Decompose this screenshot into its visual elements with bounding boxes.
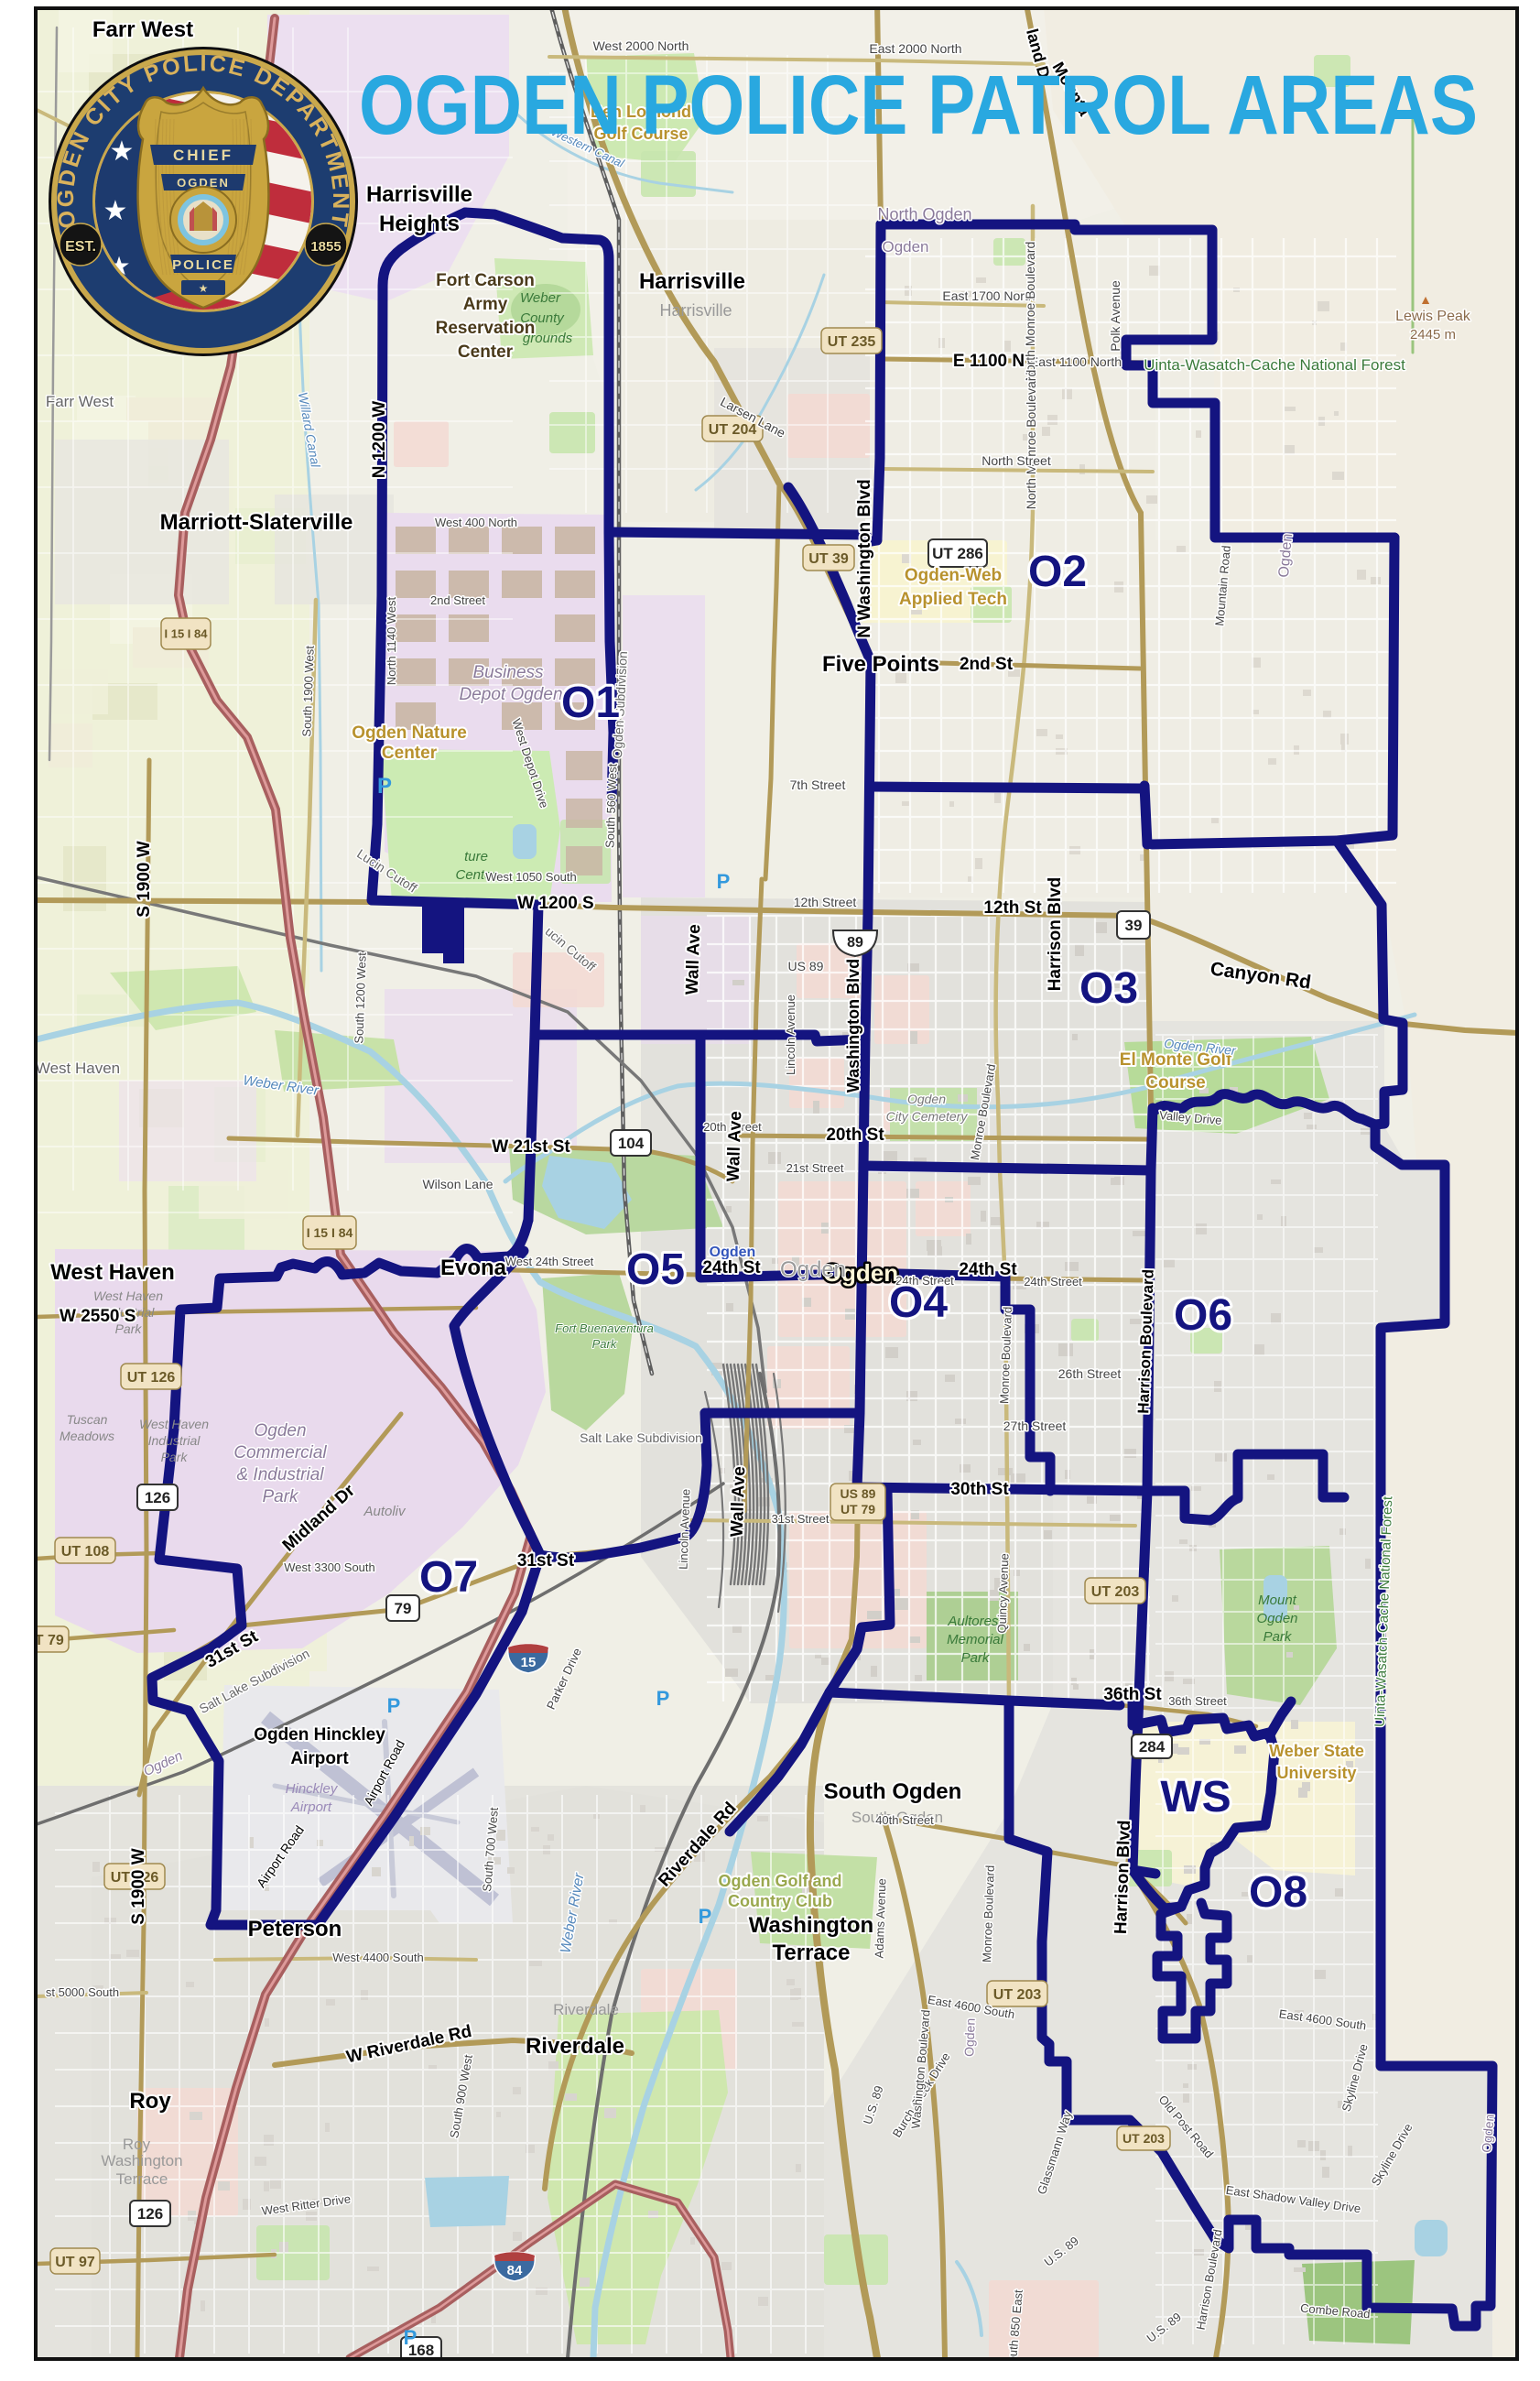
svg-text:Salt Lake Subdivision: Salt Lake Subdivision bbox=[580, 1430, 702, 1445]
svg-text:Washington Blvd: Washington Blvd bbox=[844, 959, 862, 1093]
svg-text:Lincoln Avenue: Lincoln Avenue bbox=[784, 995, 797, 1075]
svg-text:North 1140 West: North 1140 West bbox=[385, 596, 398, 685]
svg-text:Adams Avenue: Adams Avenue bbox=[872, 1878, 888, 1959]
svg-text:P: P bbox=[404, 2326, 418, 2349]
svg-text:East 2000 North: East 2000 North bbox=[869, 41, 961, 56]
svg-text:West Haven: West Haven bbox=[93, 1288, 163, 1303]
svg-text:284: 284 bbox=[1139, 1738, 1166, 1756]
svg-text:City Cemetery: City Cemetery bbox=[886, 1109, 969, 1124]
svg-text:12th St: 12th St bbox=[983, 898, 1042, 918]
svg-text:Wall Ave: Wall Ave bbox=[683, 924, 705, 995]
svg-text:Ogden Golf and: Ogden Golf and bbox=[719, 1872, 842, 1890]
svg-text:Center: Center bbox=[382, 744, 438, 763]
svg-text:Polk Avenue: Polk Avenue bbox=[1108, 280, 1122, 352]
svg-text:★: ★ bbox=[199, 282, 209, 295]
svg-text:Business: Business bbox=[472, 663, 544, 682]
svg-text:West 1050 South: West 1050 South bbox=[485, 870, 577, 884]
svg-text:West 2000 North: West 2000 North bbox=[593, 38, 689, 53]
svg-text:S 1900 W: S 1900 W bbox=[129, 1848, 148, 1924]
svg-text:North Ogden: North Ogden bbox=[877, 205, 971, 223]
svg-text:7th Street: 7th Street bbox=[790, 777, 846, 792]
svg-text:24th St: 24th St bbox=[959, 1260, 1017, 1279]
svg-text:North Monroe Boulevard: North Monroe Boulevard bbox=[1023, 242, 1037, 382]
svg-text:OGDEN POLICE PATROL AREAS: OGDEN POLICE PATROL AREAS bbox=[359, 59, 1478, 152]
svg-text:26th Street: 26th Street bbox=[1058, 1366, 1122, 1381]
svg-text:24th St: 24th St bbox=[702, 1258, 761, 1277]
svg-text:UT 126: UT 126 bbox=[127, 1370, 176, 1386]
svg-text:Airport: Airport bbox=[290, 1799, 332, 1815]
svg-text:O1: O1 bbox=[561, 679, 620, 727]
svg-text:Riverdale: Riverdale bbox=[553, 2001, 619, 2018]
svg-text:POLICE: POLICE bbox=[172, 257, 234, 273]
svg-text:West Haven: West Haven bbox=[50, 1260, 175, 1285]
svg-text:US 89: US 89 bbox=[788, 959, 824, 973]
svg-text:36th Street: 36th Street bbox=[1168, 1694, 1227, 1708]
svg-text:Ogden: Ogden bbox=[882, 238, 928, 255]
svg-text:21st Street: 21st Street bbox=[786, 1161, 844, 1175]
svg-text:W 21st St: W 21st St bbox=[492, 1137, 570, 1157]
svg-text:Course: Course bbox=[1145, 1073, 1205, 1093]
svg-text:Heights: Heights bbox=[379, 212, 460, 236]
svg-text:UT 108: UT 108 bbox=[61, 1544, 110, 1560]
svg-text:31st St: 31st St bbox=[517, 1551, 575, 1571]
svg-text:Fort Carson: Fort Carson bbox=[436, 271, 535, 290]
svg-text:84: 84 bbox=[507, 2263, 523, 2278]
svg-text:P: P bbox=[387, 1694, 401, 1717]
svg-text:Applied Tech: Applied Tech bbox=[899, 590, 1007, 609]
svg-text:▲: ▲ bbox=[1419, 292, 1432, 307]
svg-text:Quincy Avenue: Quincy Avenue bbox=[994, 1553, 1011, 1634]
svg-text:West Haven: West Haven bbox=[36, 1060, 120, 1077]
svg-text:East 1700 North: East 1700 North bbox=[942, 288, 1035, 303]
svg-text:Ogden Hinckley: Ogden Hinckley bbox=[254, 1725, 385, 1745]
svg-text:12th Street: 12th Street bbox=[794, 895, 857, 909]
svg-text:Ogden: Ogden bbox=[780, 1257, 846, 1282]
svg-text:EST.: EST. bbox=[65, 239, 96, 255]
svg-text:Memorial: Memorial bbox=[947, 1632, 1003, 1647]
svg-text:West 400 North: West 400 North bbox=[435, 516, 517, 529]
svg-text:E 1100 N: E 1100 N bbox=[953, 352, 1025, 371]
svg-text:Park: Park bbox=[1263, 1629, 1293, 1645]
svg-text:Lincoln Avenue: Lincoln Avenue bbox=[676, 1489, 692, 1570]
svg-text:US 89: US 89 bbox=[840, 1486, 876, 1501]
svg-text:Lewis Peak: Lewis Peak bbox=[1395, 309, 1471, 324]
svg-text:I 15 I 84: I 15 I 84 bbox=[165, 627, 209, 641]
svg-text:79: 79 bbox=[395, 1600, 412, 1617]
svg-text:15: 15 bbox=[521, 1655, 537, 1670]
svg-text:126: 126 bbox=[145, 1489, 170, 1506]
svg-text:Weber State: Weber State bbox=[1269, 1742, 1364, 1760]
svg-text:UT 203: UT 203 bbox=[993, 1987, 1042, 2003]
svg-text:Harrisville: Harrisville bbox=[366, 182, 472, 207]
svg-text:P: P bbox=[717, 870, 731, 893]
svg-text:University: University bbox=[1276, 1764, 1356, 1782]
svg-text:89: 89 bbox=[847, 935, 863, 951]
svg-text:East 1100 North: East 1100 North bbox=[1030, 354, 1122, 369]
svg-text:Army: Army bbox=[463, 295, 508, 314]
svg-text:P: P bbox=[377, 774, 392, 799]
svg-text:Roy: Roy bbox=[129, 2089, 171, 2114]
svg-text:Industrial: Industrial bbox=[148, 1433, 201, 1448]
svg-text:Evona: Evona bbox=[440, 1256, 507, 1280]
svg-text:Terrace: Terrace bbox=[773, 1941, 851, 1965]
svg-text:20th St: 20th St bbox=[826, 1125, 884, 1145]
svg-text:Ogden Nature: Ogden Nature bbox=[352, 723, 467, 743]
svg-text:Fort Buenaventura: Fort Buenaventura bbox=[555, 1321, 654, 1335]
svg-text:UT 203: UT 203 bbox=[1122, 2131, 1165, 2146]
svg-text:grounds: grounds bbox=[523, 331, 573, 346]
svg-text:Ogden: Ogden bbox=[961, 2018, 977, 2058]
svg-text:O7: O7 bbox=[419, 1553, 478, 1602]
svg-text:W 1200 S: W 1200 S bbox=[517, 894, 593, 913]
svg-text:Ogden-Web: Ogden-Web bbox=[905, 566, 1002, 585]
svg-text:P: P bbox=[699, 1905, 712, 1928]
svg-text:Park: Park bbox=[262, 1487, 299, 1506]
svg-text:2nd St: 2nd St bbox=[960, 655, 1014, 674]
svg-text:Commercial: Commercial bbox=[233, 1443, 327, 1462]
svg-text:UT 286: UT 286 bbox=[932, 545, 983, 562]
svg-text:Wall Ave: Wall Ave bbox=[724, 1111, 746, 1182]
svg-text:1855: 1855 bbox=[310, 239, 341, 255]
svg-text:WS: WS bbox=[1160, 1773, 1231, 1821]
svg-text:Riverdale: Riverdale bbox=[526, 2034, 624, 2059]
svg-text:UT 39: UT 39 bbox=[808, 551, 849, 567]
svg-text:★: ★ bbox=[103, 196, 128, 226]
svg-text:Uinta-Wasatch-Cache National F: Uinta-Wasatch-Cache National Forest bbox=[1144, 356, 1405, 374]
svg-text:2445 m: 2445 m bbox=[1410, 327, 1456, 342]
svg-text:O8: O8 bbox=[1249, 1868, 1307, 1917]
svg-text:S 1900 W: S 1900 W bbox=[135, 841, 154, 917]
svg-text:UT 97: UT 97 bbox=[55, 2255, 95, 2270]
svg-text:Roy: Roy bbox=[123, 2136, 151, 2153]
svg-text:North Street: North Street bbox=[981, 453, 1051, 468]
svg-text:O3: O3 bbox=[1079, 964, 1138, 1013]
svg-text:Harrison Blvd: Harrison Blvd bbox=[1112, 1820, 1134, 1934]
svg-text:Five Points: Five Points bbox=[822, 652, 939, 677]
svg-text:Harrisville: Harrisville bbox=[659, 301, 732, 320]
svg-text:West 3300 South: West 3300 South bbox=[284, 1560, 375, 1574]
svg-text:Wilson Lane: Wilson Lane bbox=[422, 1177, 493, 1191]
svg-text:N Washington Blvd: N Washington Blvd bbox=[855, 479, 874, 637]
svg-text:Harrison Blvd: Harrison Blvd bbox=[1046, 877, 1065, 992]
svg-text:North Monroe Boulevard: North Monroe Boulevard bbox=[1024, 370, 1038, 510]
svg-text:Depot Ogden: Depot Ogden bbox=[459, 685, 562, 704]
svg-text:Washington: Washington bbox=[101, 2152, 182, 2169]
svg-text:Hinckley: Hinckley bbox=[286, 1781, 339, 1797]
svg-text:Country Club: Country Club bbox=[728, 1892, 832, 1910]
svg-text:Airport: Airport bbox=[290, 1749, 349, 1768]
svg-text:West 4400 South: West 4400 South bbox=[332, 1951, 424, 1964]
svg-text:Ogden: Ogden bbox=[254, 1421, 306, 1441]
svg-text:West 24th Street: West 24th Street bbox=[505, 1255, 594, 1268]
svg-text:County: County bbox=[520, 310, 565, 326]
svg-text:O6: O6 bbox=[1174, 1291, 1232, 1340]
svg-text:Park: Park bbox=[592, 1337, 618, 1351]
svg-text:Tuscan: Tuscan bbox=[67, 1412, 108, 1427]
svg-text:Park: Park bbox=[161, 1450, 189, 1464]
svg-text:27th Street: 27th Street bbox=[1003, 1419, 1067, 1433]
svg-text:Farr West: Farr West bbox=[46, 393, 114, 410]
svg-text:Ogden: Ogden bbox=[907, 1092, 946, 1106]
svg-text:West Haven: West Haven bbox=[139, 1417, 209, 1431]
svg-text:Autoliv: Autoliv bbox=[363, 1504, 407, 1519]
svg-text:Park: Park bbox=[961, 1650, 991, 1666]
svg-text:Terrace: Terrace bbox=[116, 2170, 168, 2188]
svg-text:I 15 I 84: I 15 I 84 bbox=[307, 1225, 353, 1240]
svg-text:Farr West: Farr West bbox=[92, 17, 193, 42]
svg-text:CHIEF: CHIEF bbox=[173, 147, 233, 164]
svg-text:South Ogden: South Ogden bbox=[824, 1779, 962, 1804]
svg-text:24th Street: 24th Street bbox=[1024, 1275, 1082, 1288]
svg-text:O5: O5 bbox=[626, 1245, 685, 1294]
svg-text:O4: O4 bbox=[889, 1278, 948, 1327]
svg-text:UT 79: UT 79 bbox=[840, 1502, 875, 1517]
svg-text:30th St: 30th St bbox=[950, 1480, 1009, 1499]
svg-text:Ogden: Ogden bbox=[1256, 1611, 1297, 1626]
svg-text:W 2550 S: W 2550 S bbox=[60, 1307, 136, 1326]
svg-text:Center: Center bbox=[458, 342, 514, 362]
svg-text:N 1200 W: N 1200 W bbox=[370, 401, 389, 479]
svg-text:31st Street: 31st Street bbox=[772, 1512, 830, 1526]
svg-text:UT 203: UT 203 bbox=[1091, 1584, 1140, 1600]
svg-text:39: 39 bbox=[1125, 917, 1143, 934]
svg-text:Harrisville: Harrisville bbox=[639, 269, 745, 294]
svg-text:Weber: Weber bbox=[520, 290, 561, 306]
svg-text:126: 126 bbox=[137, 2205, 163, 2223]
svg-text:UT 204: UT 204 bbox=[709, 422, 757, 438]
svg-text:Washington: Washington bbox=[749, 1913, 873, 1938]
svg-text:104: 104 bbox=[618, 1135, 645, 1152]
svg-text:Mount: Mount bbox=[1258, 1593, 1297, 1608]
svg-text:40th Street: 40th Street bbox=[875, 1813, 934, 1827]
svg-text:P: P bbox=[656, 1687, 670, 1710]
svg-text:UT 235: UT 235 bbox=[828, 334, 876, 350]
svg-text:& Industrial: & Industrial bbox=[236, 1465, 324, 1484]
svg-text:36th St: 36th St bbox=[1103, 1685, 1162, 1704]
svg-text:Marriott-Slaterville: Marriott-Slaterville bbox=[160, 510, 353, 535]
svg-text:st 5000 South: st 5000 South bbox=[46, 1985, 119, 1999]
svg-text:O2: O2 bbox=[1028, 548, 1087, 596]
svg-text:2nd Street: 2nd Street bbox=[430, 593, 485, 607]
svg-text:Meadows: Meadows bbox=[60, 1429, 114, 1443]
svg-text:Wall Ave: Wall Ave bbox=[728, 1466, 750, 1538]
svg-text:ture: ture bbox=[464, 849, 488, 864]
svg-text:Peterson: Peterson bbox=[248, 1917, 342, 1941]
